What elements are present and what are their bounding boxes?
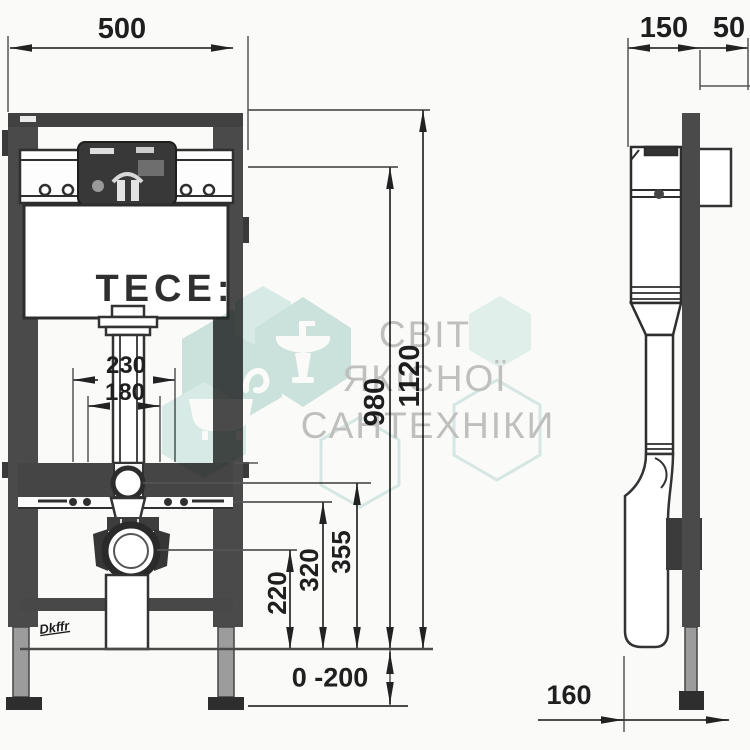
- right-adjustable-leg: [218, 627, 234, 697]
- bracket-bolt: [164, 498, 172, 506]
- flush-valve-detail: [138, 160, 164, 176]
- bracket-bolt: [180, 498, 188, 506]
- brand-logo: TECE:: [96, 268, 235, 310]
- right-foot: [208, 697, 244, 710]
- rail-bolt: [40, 185, 50, 195]
- dim-leg-adjustment: 0 -200: [292, 662, 369, 692]
- bracket-bolt: [83, 498, 91, 506]
- rail-bolt: [181, 185, 191, 195]
- dim-overall-width: 500: [98, 13, 146, 45]
- dim-drain-offset: 160: [546, 680, 591, 710]
- drain-bend-profile: [625, 454, 673, 647]
- side-view: [625, 86, 750, 710]
- dim-fixing-spacing-outer: 230: [106, 352, 146, 379]
- drain-pipe: [106, 575, 148, 649]
- flush-valve-slot: [90, 148, 114, 154]
- wall-anchor-tab: [2, 130, 8, 156]
- wall-anchor-tab: [243, 217, 249, 243]
- bracket-bolt: [69, 498, 77, 506]
- rail-bolt: [63, 185, 73, 195]
- dim-drain-center-height: 220: [262, 571, 292, 614]
- front-view: TECE:: [2, 113, 249, 710]
- left-adjustable-leg: [13, 627, 29, 697]
- side-foot: [679, 691, 704, 710]
- top-crossbar: [8, 113, 243, 127]
- cistern-profile: [631, 147, 681, 454]
- flush-valve-detail: [131, 180, 139, 201]
- wall-anchor-tab: [243, 462, 249, 478]
- flush-valve-detail: [92, 180, 104, 192]
- side-adjustable-leg: [685, 627, 697, 693]
- dim-fixing-spacing-inner: 180: [105, 379, 145, 406]
- dim-actuator-height: 980: [359, 378, 391, 426]
- rail-bolt: [204, 185, 214, 195]
- technical-drawing-page: TECE:: [0, 0, 750, 750]
- wall-mount-plate: [698, 149, 731, 206]
- side-rail: [682, 113, 700, 627]
- dim-bracket-height: 320: [294, 548, 324, 591]
- dim-frame-depth: 150: [640, 12, 688, 44]
- left-foot: [6, 697, 42, 710]
- installation-frame-drawing: TECE:: [0, 0, 750, 750]
- dim-overall-height: 1120: [394, 345, 426, 408]
- wall-anchor-tab: [2, 462, 8, 478]
- drain-outlet: [93, 525, 170, 649]
- handwritten-stamp: Dkffr: [38, 618, 71, 637]
- dim-wall-offset: 50: [713, 12, 745, 44]
- cistern: TECE:: [24, 205, 235, 318]
- flush-unit-assembly: [20, 142, 233, 205]
- flush-valve-slot: [136, 147, 154, 153]
- top-crossbar-slot: [20, 116, 36, 122]
- dim-supply-height: 355: [326, 530, 356, 573]
- flush-valve-detail: [117, 180, 125, 201]
